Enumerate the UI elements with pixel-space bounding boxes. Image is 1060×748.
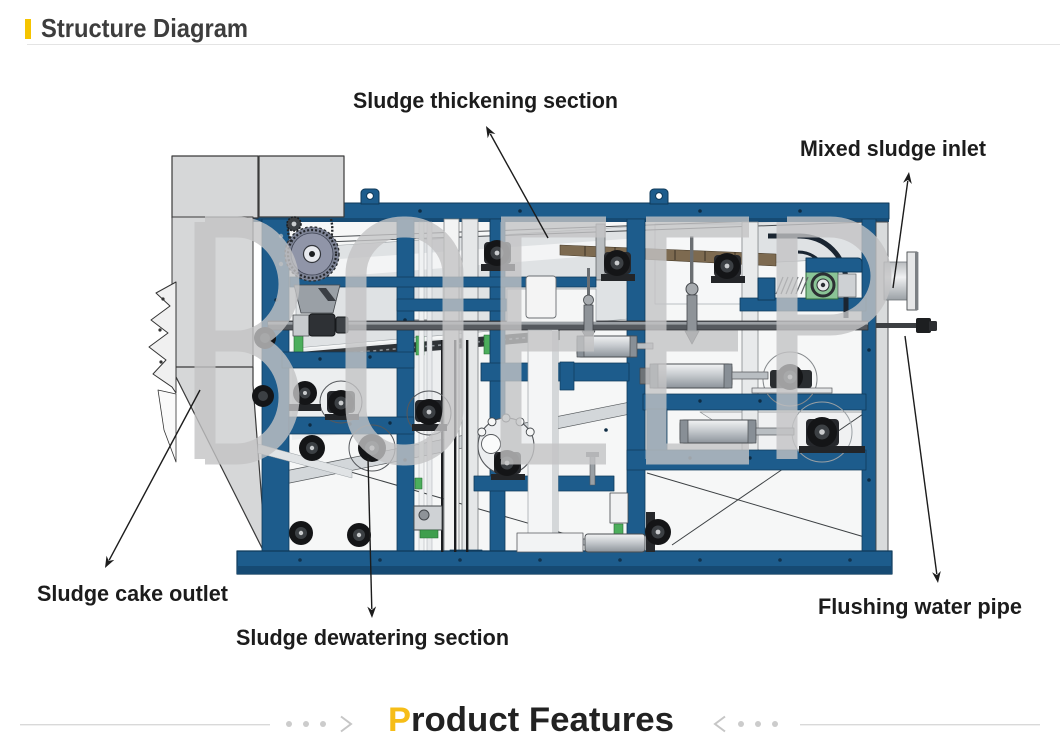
svg-text:Flushing water pipe: Flushing water pipe [818,594,1022,619]
svg-text:P: P [388,701,411,739]
svg-text:roduct Features: roduct Features [411,701,674,739]
svg-text:Sludge dewatering section: Sludge dewatering section [236,625,509,650]
svg-text:Mixed sludge inlet: Mixed sludge inlet [800,136,987,161]
svg-text:Sludge cake outlet: Sludge cake outlet [37,581,229,606]
svg-text:Sludge thickening section: Sludge thickening section [353,88,618,113]
svg-text:Structure Diagram: Structure Diagram [41,13,248,43]
